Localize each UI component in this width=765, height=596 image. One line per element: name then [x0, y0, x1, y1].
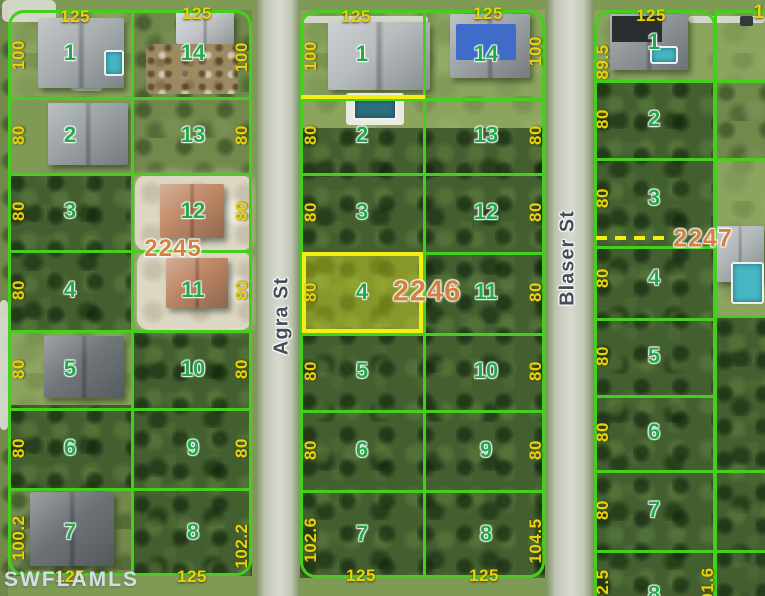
dimension-label: 80 [232, 280, 252, 300]
street-label-blaser-st: Blaser St [557, 210, 580, 306]
dimension-label: 80 [232, 438, 252, 458]
lot-number: 6 [356, 437, 368, 463]
dimension-label: 102.5 [593, 569, 613, 596]
lot-number: 3 [648, 185, 660, 211]
parcel-block-outline [8, 10, 252, 576]
parcel-line [714, 158, 765, 161]
dimension-label: 100 [9, 40, 29, 70]
dimension-label: 80 [232, 201, 252, 221]
dimension-label: 80 [232, 125, 252, 145]
lot-number: 7 [648, 497, 660, 523]
parcel-line [594, 395, 716, 398]
lot-number: 14 [181, 40, 205, 66]
lot-number: 10 [181, 356, 205, 382]
terrain-patch [716, 318, 765, 596]
dimension-label: 80 [9, 125, 29, 145]
lot-number: 3 [64, 198, 76, 224]
dimension-label: 100.2 [9, 515, 29, 560]
dimension-label: 80 [526, 361, 546, 381]
parcel-line [714, 550, 765, 553]
parcel-line [714, 80, 765, 83]
dimension-label: 80 [593, 346, 613, 366]
dimension-label: 80 [301, 440, 321, 460]
parcel-2247-dashed-boundary [596, 236, 668, 240]
parcel-line [8, 330, 252, 333]
lot-number: 1 [648, 29, 660, 55]
parcel-line [594, 318, 716, 321]
parcel-line [131, 10, 134, 576]
lot-number: 12 [474, 199, 498, 225]
dimension-label: 80 [301, 361, 321, 381]
sidewalk [0, 300, 8, 430]
lot-number: 4 [64, 277, 76, 303]
parcel-line [594, 158, 716, 161]
parcel-line [8, 488, 252, 491]
lot-number: 3 [356, 199, 368, 225]
car [740, 16, 753, 26]
dimension-label: 104.5 [526, 518, 546, 563]
street-label-agra-st: Agra St [271, 277, 294, 355]
dimension-label: 125 [473, 4, 503, 24]
lot-number: 12 [181, 198, 205, 224]
dimension-label: 125 [346, 566, 376, 586]
dimension-label: 100 [526, 36, 546, 66]
dimension-label: 80 [9, 438, 29, 458]
lot-number: 9 [480, 437, 492, 463]
lot-number: 5 [648, 343, 660, 369]
dimension-label: 80 [593, 500, 613, 520]
lot-number: 10 [474, 358, 498, 384]
dimension-label: 101.6 [698, 567, 718, 596]
lot-number: 2 [356, 122, 368, 148]
lot-number: 6 [64, 435, 76, 461]
dimension-label: 102.6 [301, 517, 321, 562]
parcel-line [8, 97, 252, 100]
watermark: SWFLAMLS [4, 568, 139, 592]
dimension-label: 80 [593, 109, 613, 129]
dimension-label: 80 [9, 201, 29, 221]
lot-number: 4 [648, 265, 660, 291]
lot-number: 13 [474, 122, 498, 148]
dimension-label: 80 [9, 280, 29, 300]
dimension-label: 80 [526, 282, 546, 302]
dimension-label: 125 [182, 4, 212, 24]
dimension-label: 102.2 [232, 523, 252, 568]
parcel-id-2246: 2246 [393, 276, 462, 309]
lot-number: 7 [356, 521, 368, 547]
lot-number: 2 [64, 122, 76, 148]
dimension-label: 80 [301, 202, 321, 222]
dimension-label: 125 [636, 6, 666, 26]
parcel-line [594, 470, 716, 473]
dimension-label: 80 [9, 359, 29, 379]
lot-number: 6 [648, 419, 660, 445]
parcel-id-2245: 2245 [144, 235, 201, 263]
parcel-line [8, 250, 252, 253]
dimension-label: 80 [526, 440, 546, 460]
lot-number: 5 [356, 358, 368, 384]
parcel-line [594, 80, 716, 83]
dimension-label: 80 [301, 125, 321, 145]
parcel-id-2247: 2247 [673, 225, 733, 254]
dimension-label: 80 [593, 268, 613, 288]
lot-number: 8 [480, 521, 492, 547]
lot-number: 9 [187, 435, 199, 461]
lot-number: 1 [356, 41, 368, 67]
parcel-line [714, 10, 717, 596]
lot-number: 8 [187, 519, 199, 545]
dimension-label: 80 [593, 188, 613, 208]
terrain-patch [716, 80, 765, 158]
dimension-label: 80 [526, 125, 546, 145]
lot-number: 2 [648, 106, 660, 132]
lot-boundary-highlight-line [301, 95, 425, 99]
parcel-line [8, 173, 252, 176]
parcel-line [714, 470, 765, 473]
dimension-label: 125 [60, 7, 90, 27]
lot-number: 1 [64, 40, 76, 66]
lot-number: 7 [64, 519, 76, 545]
dimension-label: 80 [526, 202, 546, 222]
lot-number: 11 [474, 279, 497, 305]
terrain-patch [0, 0, 8, 596]
lot-number: 5 [64, 356, 76, 382]
dimension-label: 125 [469, 566, 499, 586]
dimension-label: 125 [177, 567, 207, 587]
pool [731, 262, 764, 304]
dimension-label: 125 [341, 7, 371, 27]
parcel-line [594, 550, 716, 553]
lot-number: 8 [648, 581, 660, 596]
lot-number: 4 [356, 279, 368, 305]
dimension-label: 100 [301, 41, 321, 71]
lot-number: 13 [181, 122, 205, 148]
map-canvas[interactable]: 1251251251251008080808080100.21008080808… [0, 0, 765, 596]
dimension-label: 89.5 [593, 44, 613, 79]
parcel-line [714, 315, 765, 318]
dimension-label: 100 [232, 42, 252, 72]
dimension-label: 80 [301, 282, 321, 302]
dimension-label: 80 [593, 422, 613, 442]
parcel-line [8, 408, 252, 411]
dimension-label: 80 [232, 359, 252, 379]
partial-dimension-label: 1 [753, 2, 764, 24]
lot-number: 11 [181, 277, 204, 303]
lot-number: 14 [474, 41, 498, 67]
